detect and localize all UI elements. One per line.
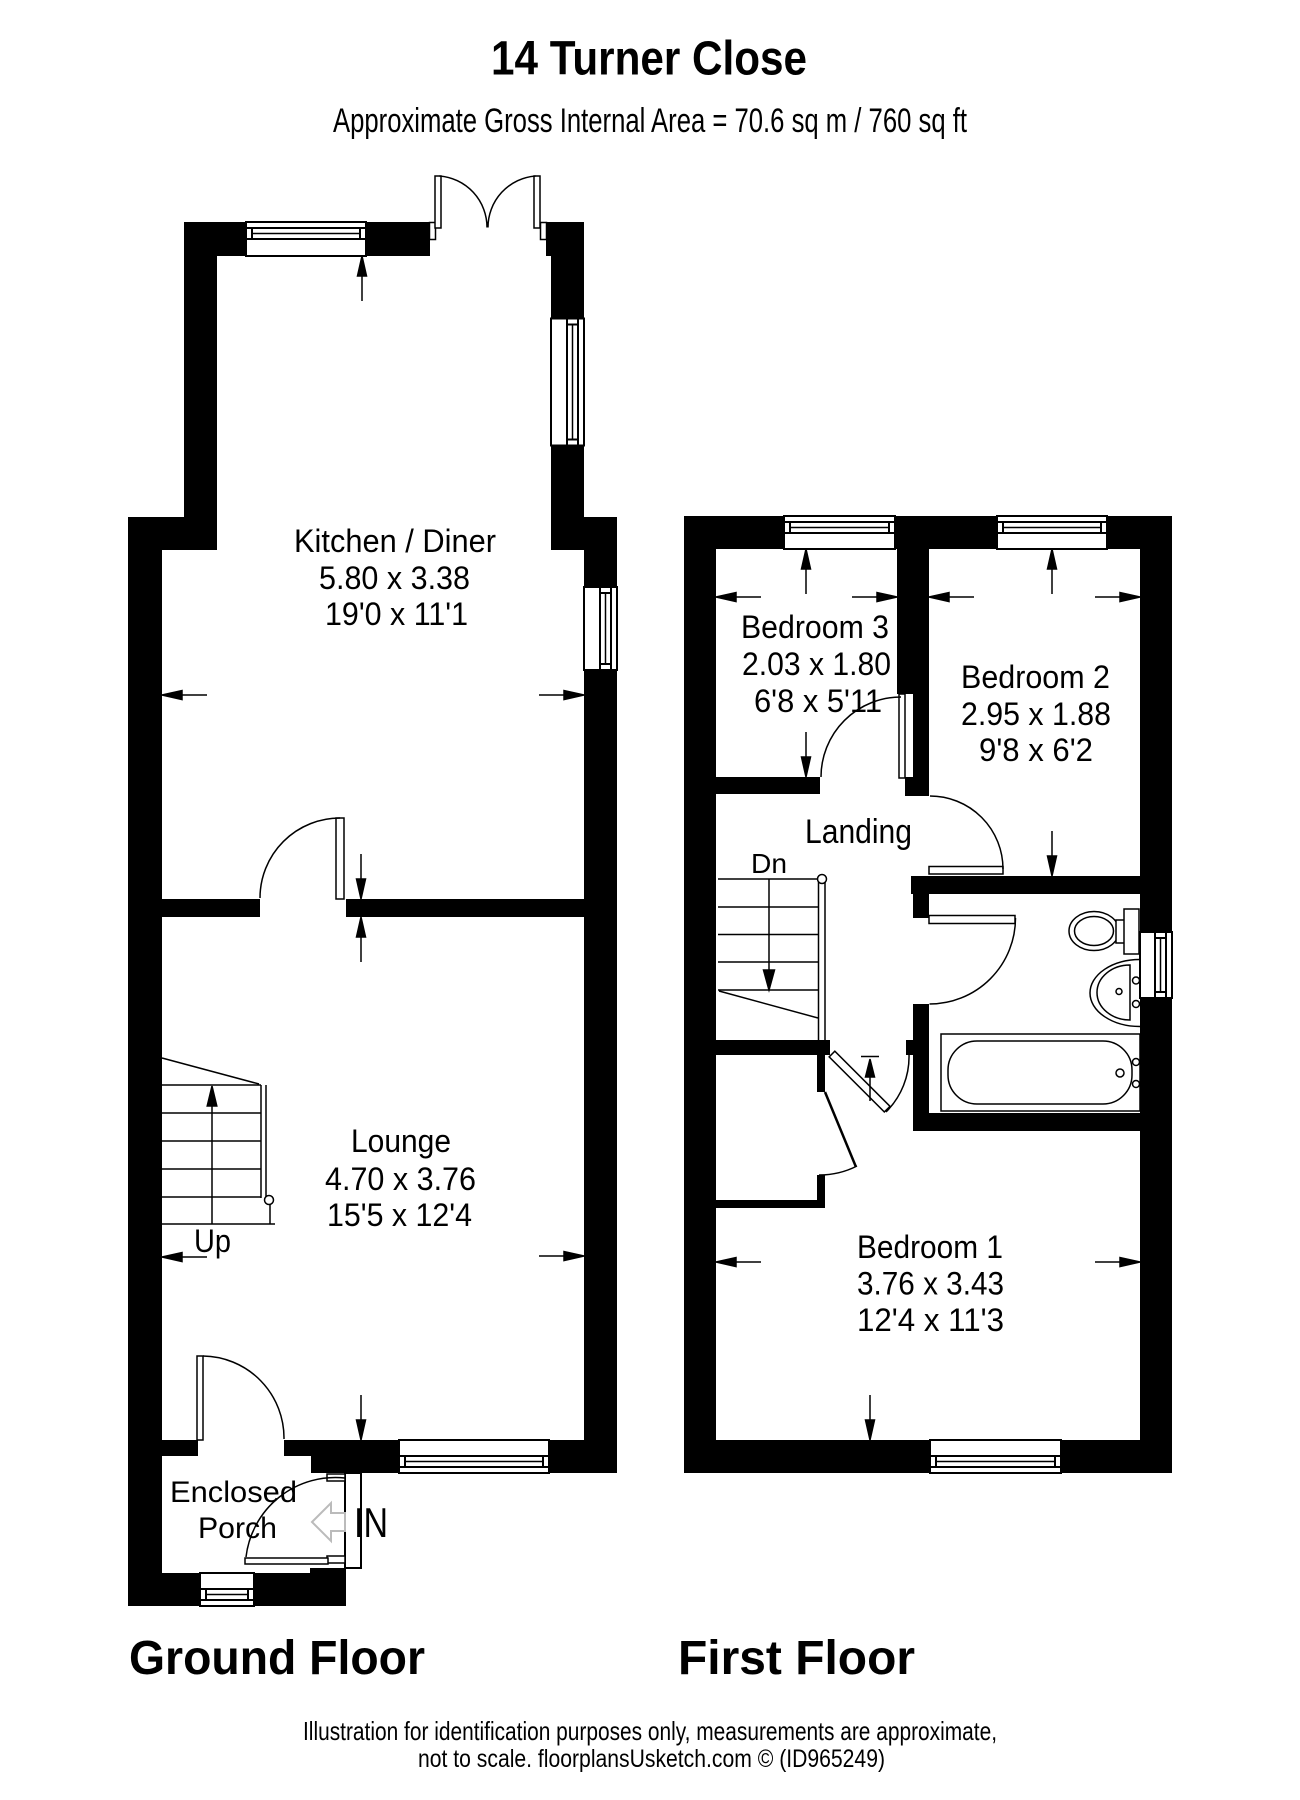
svg-text:4.70 x 3.76: 4.70 x 3.76 xyxy=(325,1161,476,1197)
svg-text:2.95 x 1.88: 2.95 x 1.88 xyxy=(961,696,1111,732)
svg-text:IN: IN xyxy=(354,1499,388,1546)
svg-text:Porch: Porch xyxy=(198,1512,277,1545)
svg-text:Enclosed: Enclosed xyxy=(170,1476,297,1509)
svg-text:Kitchen / Diner: Kitchen / Diner xyxy=(294,523,496,559)
svg-text:2.03 x 1.80: 2.03 x 1.80 xyxy=(742,646,891,682)
svg-text:Illustration for identificatio: Illustration for identification purposes… xyxy=(303,1716,997,1746)
svg-text:Approximate Gross Internal Are: Approximate Gross Internal Area = 70.6 s… xyxy=(333,102,967,140)
svg-text:Landing: Landing xyxy=(805,813,912,851)
svg-text:Ground Floor: Ground Floor xyxy=(129,1632,425,1685)
svg-text:Lounge: Lounge xyxy=(351,1123,451,1159)
svg-text:Bedroom 3: Bedroom 3 xyxy=(741,609,889,645)
svg-text:Dn: Dn xyxy=(751,848,787,879)
svg-text:3.76 x 3.43: 3.76 x 3.43 xyxy=(857,1266,1004,1302)
svg-text:6'8 x 5'11: 6'8 x 5'11 xyxy=(754,683,882,719)
svg-text:Bedroom 2: Bedroom 2 xyxy=(961,659,1110,695)
svg-text:12'4 x 11'3: 12'4 x 11'3 xyxy=(857,1302,1004,1338)
svg-text:First Floor: First Floor xyxy=(678,1632,915,1685)
svg-text:not to scale. floorplansUsketc: not to scale. floorplansUsketch.com © (I… xyxy=(418,1745,885,1773)
svg-text:19'0 x 11'1: 19'0 x 11'1 xyxy=(325,596,468,632)
svg-text:5.80 x 3.38: 5.80 x 3.38 xyxy=(319,560,470,596)
svg-text:15'5 x 12'4: 15'5 x 12'4 xyxy=(327,1197,472,1233)
svg-text:Bedroom 1: Bedroom 1 xyxy=(857,1229,1003,1265)
svg-text:14 Turner Close: 14 Turner Close xyxy=(491,33,807,86)
svg-text:9'8 x 6'2: 9'8 x 6'2 xyxy=(979,732,1093,768)
svg-text:Up: Up xyxy=(194,1223,231,1259)
